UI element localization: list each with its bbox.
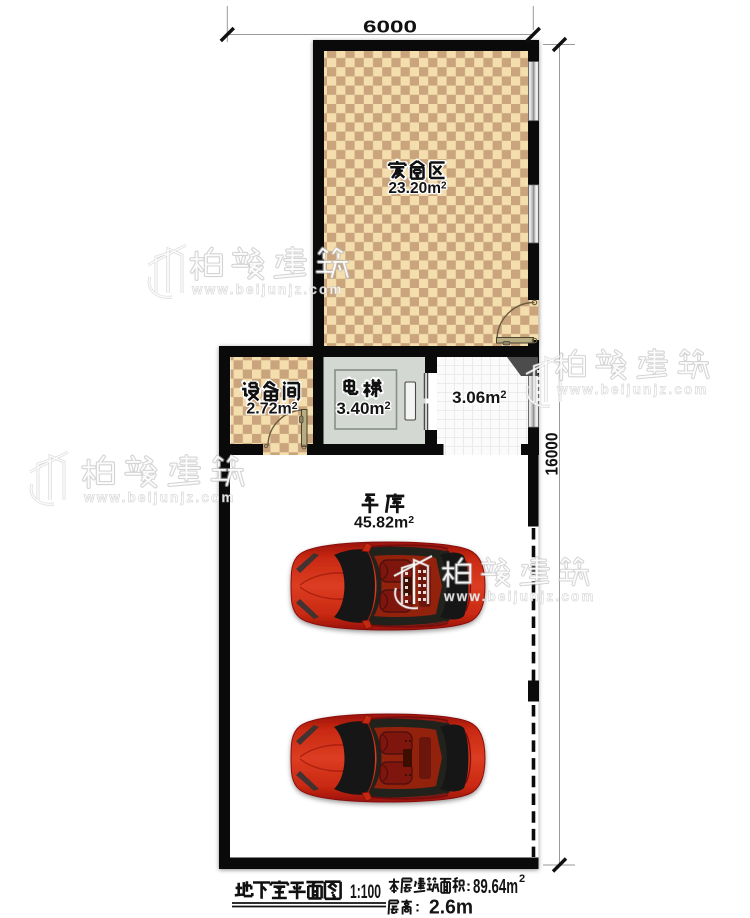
- svg-text:2.72m2: 2.72m2: [246, 400, 297, 418]
- svg-text:89.64m: 89.64m: [473, 876, 518, 898]
- svg-text:3.06m2: 3.06m2: [452, 388, 506, 407]
- svg-text:45.82m2: 45.82m2: [354, 514, 414, 532]
- svg-text:www.beijunjz.com: www.beijunjz.com: [191, 282, 344, 297]
- svg-text:1:100: 1:100: [350, 882, 381, 903]
- svg-text:2.6m: 2.6m: [429, 897, 473, 918]
- svg-text:3.40m2: 3.40m2: [336, 399, 390, 418]
- svg-text:www.beijunjz.com: www.beijunjz.com: [443, 589, 596, 604]
- svg-text:www.beijunjz.com: www.beijunjz.com: [83, 490, 236, 505]
- svg-text::: :: [415, 899, 420, 916]
- svg-text:www.beijunjz.com: www.beijunjz.com: [556, 382, 709, 397]
- svg-text:6000: 6000: [363, 17, 417, 37]
- svg-text:2: 2: [519, 873, 525, 885]
- svg-text:16000: 16000: [542, 432, 562, 475]
- svg-text:23.20m2: 23.20m2: [388, 180, 447, 197]
- svg-text::: :: [466, 878, 471, 895]
